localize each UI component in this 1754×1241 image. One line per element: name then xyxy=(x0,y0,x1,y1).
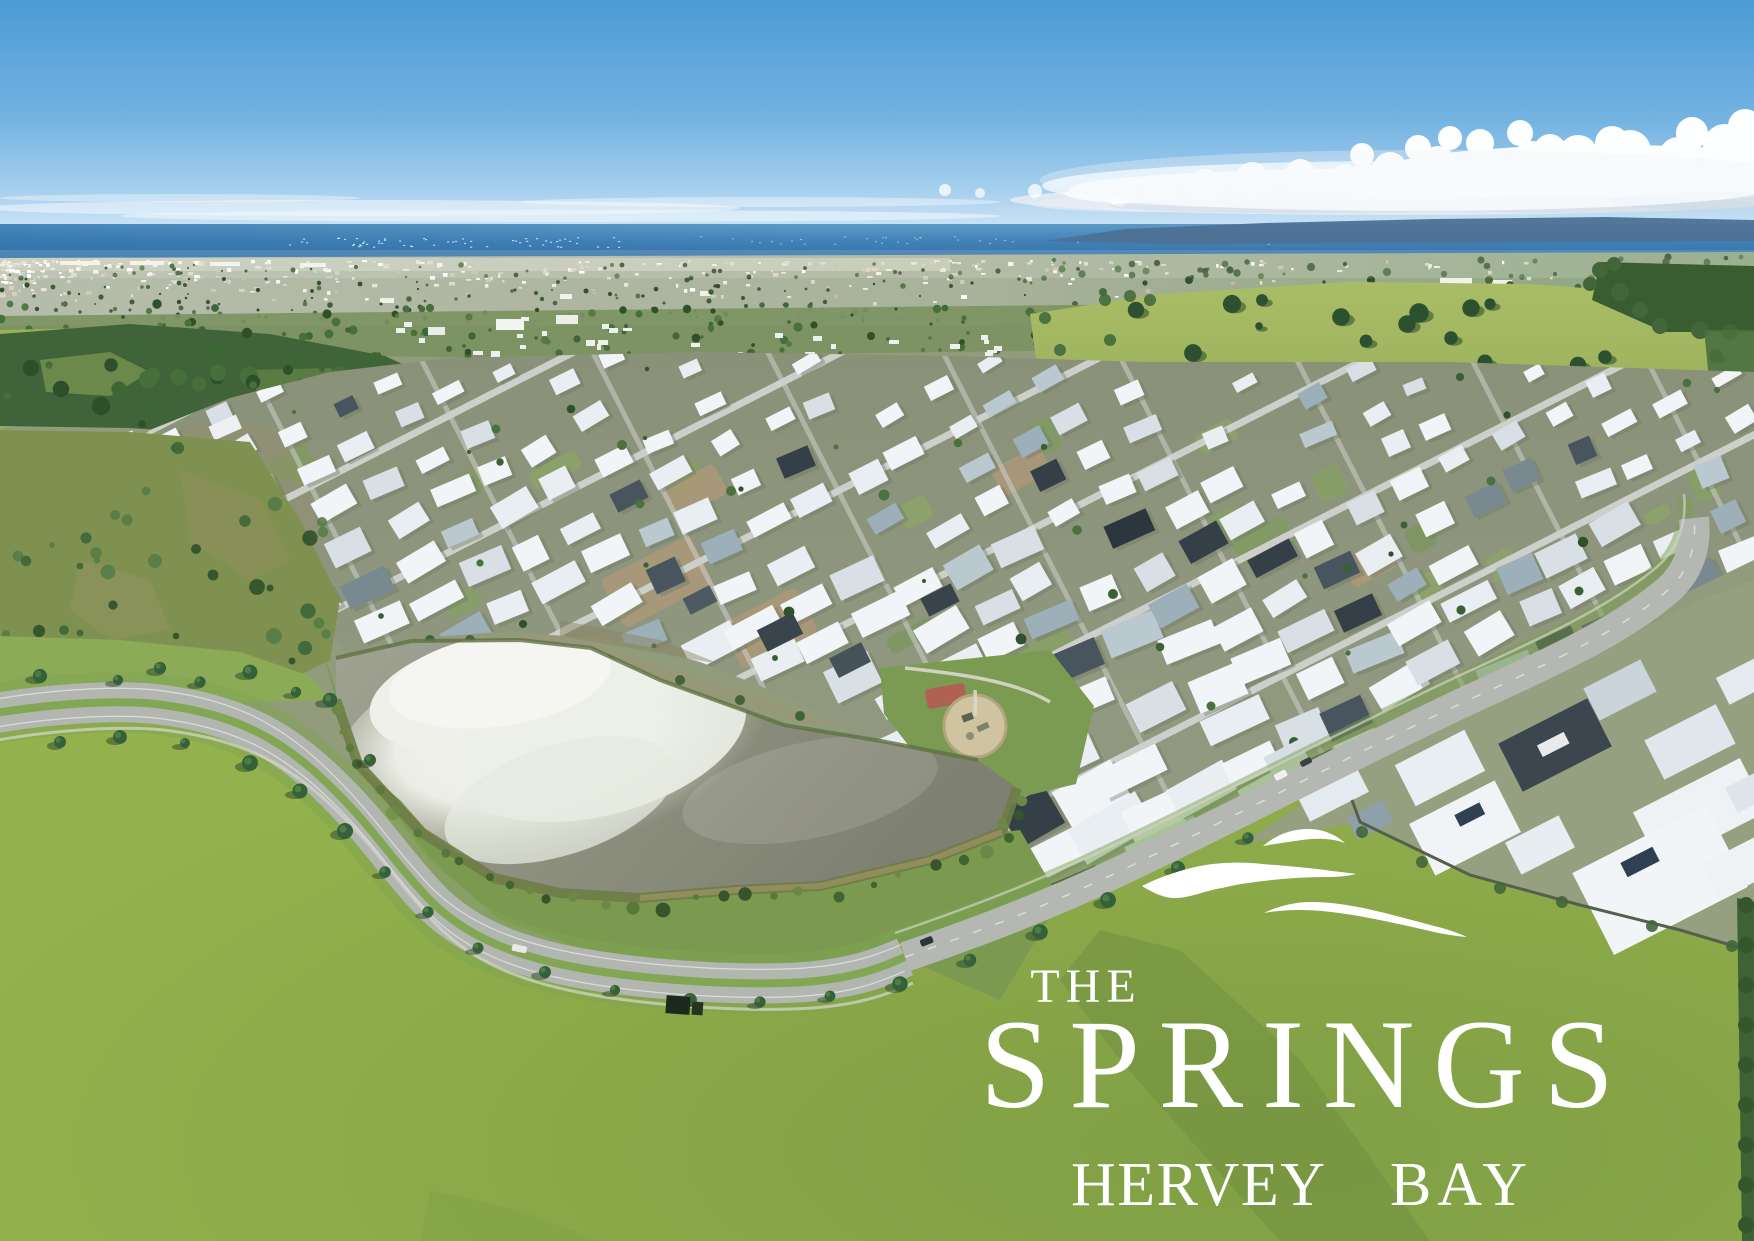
svg-text:SPRINGS: SPRINGS xyxy=(980,995,1614,1135)
svg-text:HERVEY: HERVEY xyxy=(1071,1151,1325,1219)
svg-text:BAY: BAY xyxy=(1390,1151,1527,1219)
